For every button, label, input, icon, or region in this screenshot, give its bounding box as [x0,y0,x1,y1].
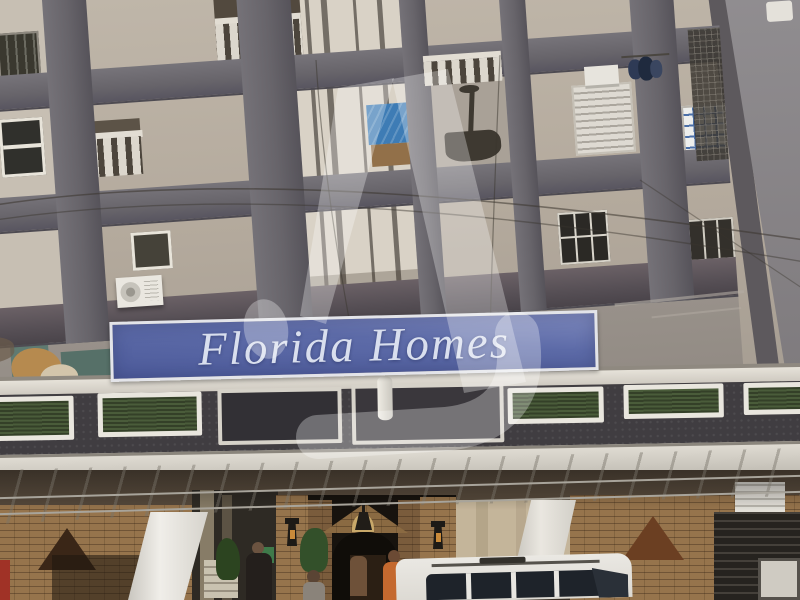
plant [300,528,328,572]
white-panel [758,558,800,600]
person-in-doorway [350,556,367,596]
van-roof-box [479,557,525,564]
green-panel [623,383,724,419]
plant [216,538,240,580]
green-panel [507,386,604,424]
white-van [395,553,632,600]
van-window-pillar [511,572,517,598]
lantern-glow [290,530,295,539]
green-panel [97,391,202,437]
dark-panel [217,387,342,445]
dark-panel [351,382,504,445]
person-dark-clothes [246,553,272,600]
van-window-pillar [466,573,472,599]
lantern-glow [436,533,441,542]
signboard-text: Florida Homes [198,319,511,374]
green-panel [743,382,800,415]
building-signboard: Florida Homes [109,310,598,382]
child [303,582,325,600]
building-photo: Florida Homes [0,0,800,600]
green-panel [0,396,74,441]
wall-shadow [52,555,142,600]
lantern-lamp [283,514,301,554]
lantern-lamp [429,517,447,557]
red-post [0,560,10,600]
white-pipe [377,376,393,420]
van-window-pillar [554,571,560,597]
van-windows [426,570,607,600]
